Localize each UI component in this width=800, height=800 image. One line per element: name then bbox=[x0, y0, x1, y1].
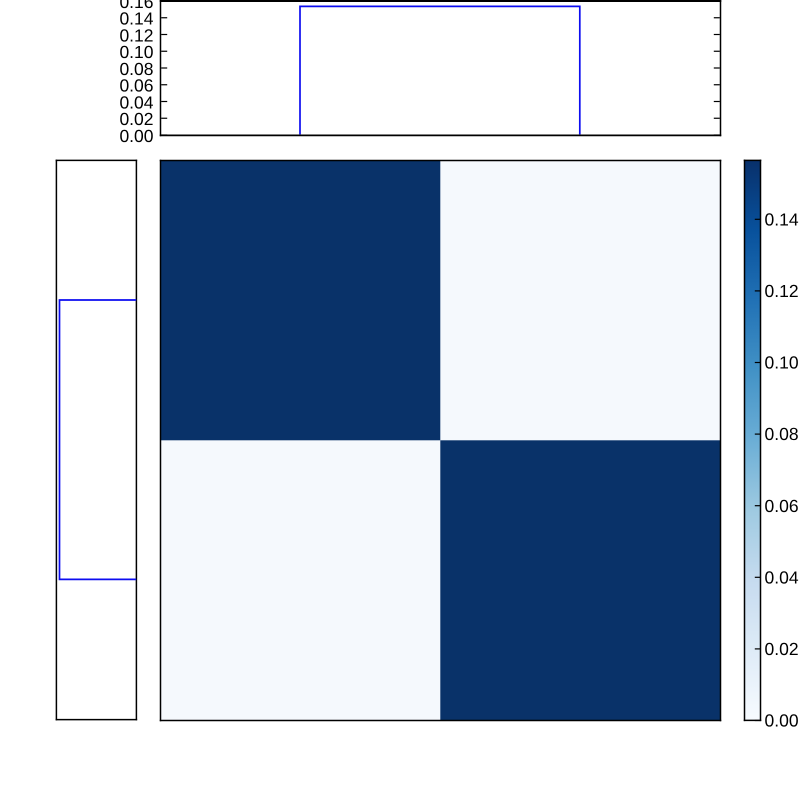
svg-text:0.14: 0.14 bbox=[765, 209, 799, 229]
svg-text:0.10: 0.10 bbox=[765, 353, 799, 373]
svg-text:0.02: 0.02 bbox=[765, 639, 799, 659]
svg-text:0.00: 0.00 bbox=[119, 126, 153, 146]
svg-text:0.00: 0.00 bbox=[765, 711, 799, 731]
svg-text:0.04: 0.04 bbox=[765, 567, 799, 587]
svg-text:0.06: 0.06 bbox=[765, 496, 799, 516]
svg-text:0.12: 0.12 bbox=[765, 281, 799, 301]
svg-text:0.08: 0.08 bbox=[765, 424, 799, 444]
